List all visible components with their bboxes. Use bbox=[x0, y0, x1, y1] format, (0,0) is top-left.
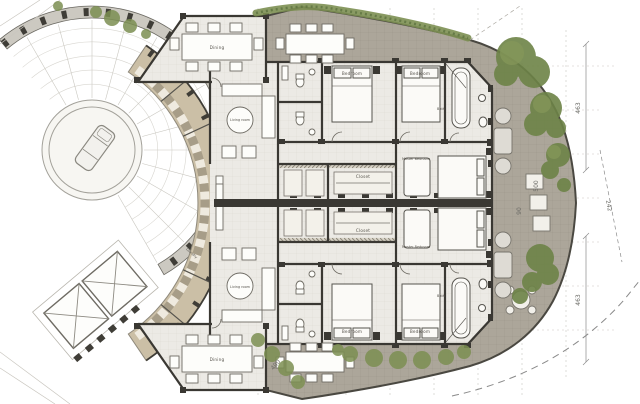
label-dining-bottom: Dining bbox=[210, 357, 225, 362]
master-bedroom-furniture bbox=[404, 156, 486, 198]
label-master-top: Master Bedroom bbox=[402, 157, 431, 161]
party-wall bbox=[214, 199, 492, 207]
dim-90: 90 bbox=[516, 207, 523, 215]
floor-plan-image: Dining Dining Living room Living room Be… bbox=[0, 0, 640, 404]
dim-463-top: 463 bbox=[575, 102, 582, 114]
dim-463-bottom: 463 bbox=[575, 294, 582, 306]
terrace-loungers bbox=[494, 108, 512, 174]
label-dining-top: Dining bbox=[210, 45, 225, 50]
label-bath-top: Bath bbox=[437, 107, 445, 111]
label-closet-top: Closet bbox=[356, 174, 370, 179]
label-living-bottom: Living room bbox=[230, 285, 251, 289]
label-master-bottom: Master Bedroom bbox=[402, 245, 431, 249]
adjacent-structure-lines bbox=[0, 0, 70, 404]
label-bedroom-3: Bedroom bbox=[342, 329, 362, 334]
label-bedroom-4: Bedroom bbox=[410, 329, 430, 334]
label-closet-bottom: Closet bbox=[356, 228, 370, 233]
label-bedroom-2: Bedroom bbox=[410, 71, 430, 76]
label-bath-bottom: Bath bbox=[437, 294, 445, 298]
label-bedroom-1: Bedroom bbox=[342, 71, 362, 76]
label-living-top: Living room bbox=[230, 118, 251, 122]
floor-plan-svg: Dining Dining Living room Living room Be… bbox=[0, 0, 640, 404]
closet-millwork bbox=[284, 170, 392, 196]
dim-diagonal: 242 bbox=[604, 199, 613, 212]
dim-500: 500 bbox=[533, 180, 540, 192]
